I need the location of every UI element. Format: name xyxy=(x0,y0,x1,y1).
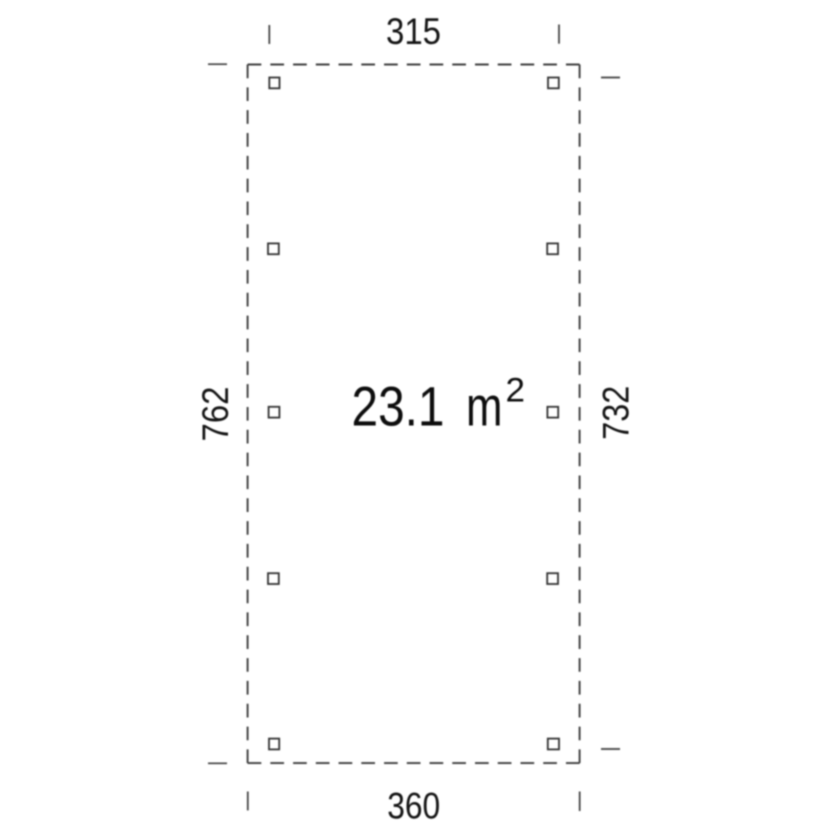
svg-text:m: m xyxy=(466,375,503,438)
svg-text:732: 732 xyxy=(595,386,636,440)
svg-text:315: 315 xyxy=(386,11,441,52)
svg-text:23.1: 23.1 xyxy=(352,375,445,438)
svg-text:762: 762 xyxy=(195,387,236,442)
svg-text:2: 2 xyxy=(506,371,526,409)
svg-text:360: 360 xyxy=(387,785,440,826)
